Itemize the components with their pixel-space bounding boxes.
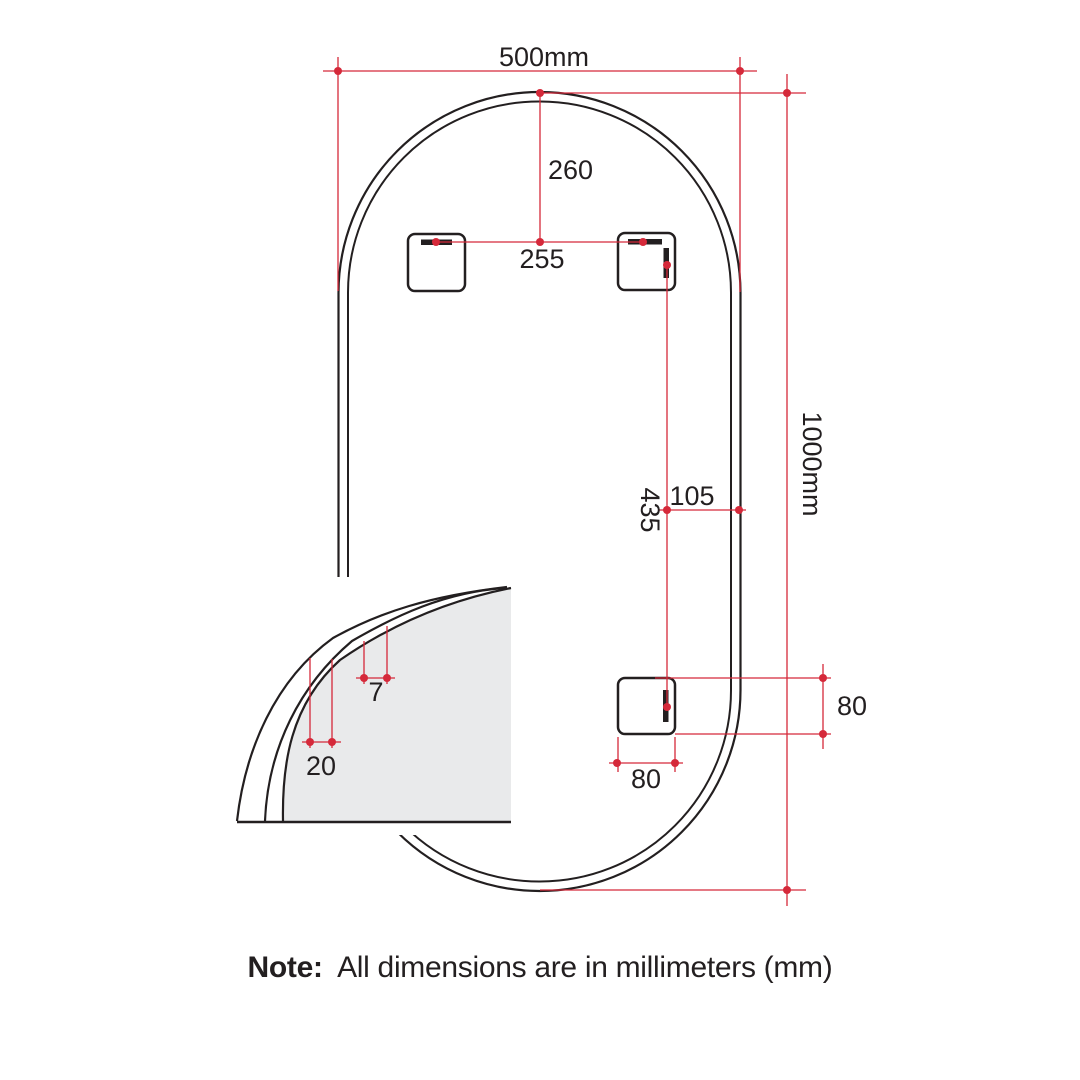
label-bracket-to-edge: 105 (669, 481, 714, 511)
label-overall-height: 1000mm (797, 411, 827, 516)
label-bracket-spacing: 255 (519, 244, 564, 274)
note-label: Note: (248, 951, 323, 984)
label-overall-width: 500mm (499, 42, 589, 72)
label-lower-bracket-width: 80 (631, 764, 661, 794)
label-top-to-brackets: 260 (548, 155, 593, 185)
label-detail-outer-offset: 20 (306, 751, 336, 781)
label-detail-inner-offset: 7 (368, 677, 383, 707)
note-body: All dimensions are in millimeters (mm) (337, 951, 832, 984)
footer-note: Note: All dimensions are in millimeters … (248, 951, 833, 984)
label-upper-to-lower-bracket: 435 (635, 487, 665, 532)
mirror-dimension-drawing: 500mm 260 255 105 435 1000mm 80 80 7 20 … (0, 0, 1080, 1080)
label-lower-bracket-height: 80 (837, 691, 867, 721)
drawing-canvas: 500mm 260 255 105 435 1000mm 80 80 7 20 … (0, 0, 1080, 1080)
